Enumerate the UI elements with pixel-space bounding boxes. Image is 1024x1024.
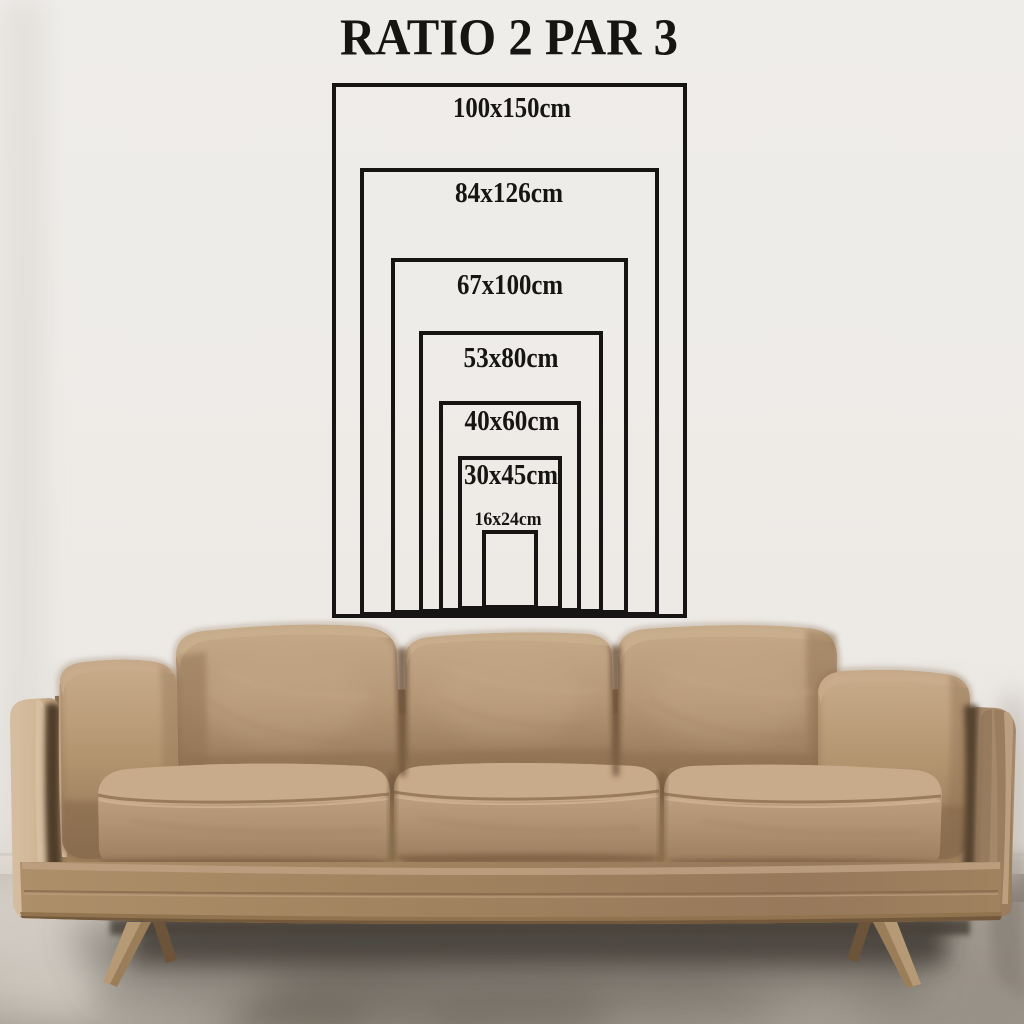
svg-text:67x100cm: 67x100cm [457, 270, 563, 301]
svg-text:53x80cm: 53x80cm [464, 343, 559, 374]
svg-text:84x126cm: 84x126cm [455, 178, 563, 209]
svg-text:16x24cm: 16x24cm [475, 509, 542, 530]
svg-text:RATIO 2 PAR 3: RATIO 2 PAR 3 [340, 10, 678, 67]
svg-text:40x60cm: 40x60cm [465, 406, 560, 437]
svg-text:30x45cm: 30x45cm [464, 460, 558, 491]
svg-text:100x150cm: 100x150cm [453, 93, 571, 124]
